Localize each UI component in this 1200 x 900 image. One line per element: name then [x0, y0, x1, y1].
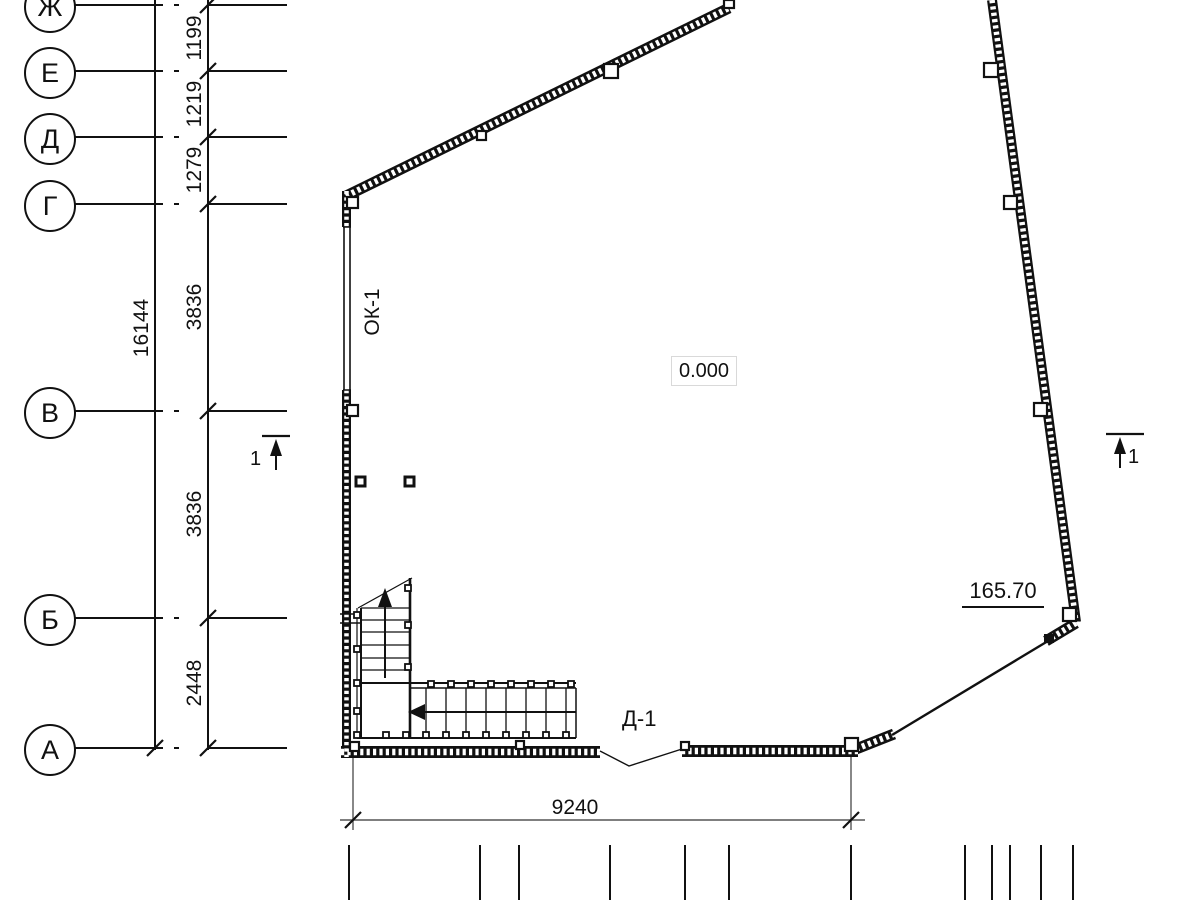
floor-plan-canvas: Ж Е Д Г В Б А 1199 1219 1279 3836 3836 2…	[0, 0, 1200, 900]
plan-linework	[0, 0, 1200, 900]
dim-overall-width: 9240	[530, 796, 620, 820]
axis-bubble-d: Д	[24, 113, 76, 165]
section-number-right: 1	[1128, 446, 1139, 469]
section-number-left: 1	[250, 448, 261, 471]
bottom-edge-ticks	[349, 845, 1073, 900]
window-label: ОК-1	[361, 267, 381, 357]
free-column-squares	[356, 477, 414, 486]
elevation-mark: 165.70	[962, 578, 1044, 608]
se-wall-anchor	[1044, 634, 1054, 643]
axis-bubble-b: Б	[24, 594, 76, 646]
level-mark-box: 0.000	[671, 356, 737, 386]
door-label: Д-1	[622, 706, 656, 732]
section-mark-left	[262, 436, 290, 470]
door-d1-symbol	[600, 749, 682, 766]
axis-label: А	[41, 737, 59, 764]
axis-bubble-a: А	[24, 724, 76, 776]
se-window-wall	[892, 641, 1048, 735]
window-ok1	[343, 227, 351, 390]
axis-grid-lines	[72, 0, 287, 750]
dim-overall-height: 16144	[130, 283, 150, 373]
level-mark: 0.000	[679, 360, 729, 383]
axis-bubble-v: В	[24, 387, 76, 439]
axis-label: Д	[41, 126, 59, 153]
dim-v-b: 3836	[183, 469, 203, 559]
staircase	[340, 578, 576, 738]
axis-bubble-g: Г	[24, 180, 76, 232]
axis-label: Ж	[38, 0, 63, 21]
axis-label: Б	[41, 607, 59, 634]
axis-label: В	[41, 400, 59, 427]
dim-b-a: 2448	[183, 638, 203, 728]
axis-label: Е	[41, 60, 59, 87]
dim-d-g: 1279	[183, 125, 203, 215]
dim-g-v: 3836	[183, 262, 203, 352]
axis-bubble-e: Е	[24, 47, 76, 99]
axis-label: Г	[43, 193, 58, 220]
